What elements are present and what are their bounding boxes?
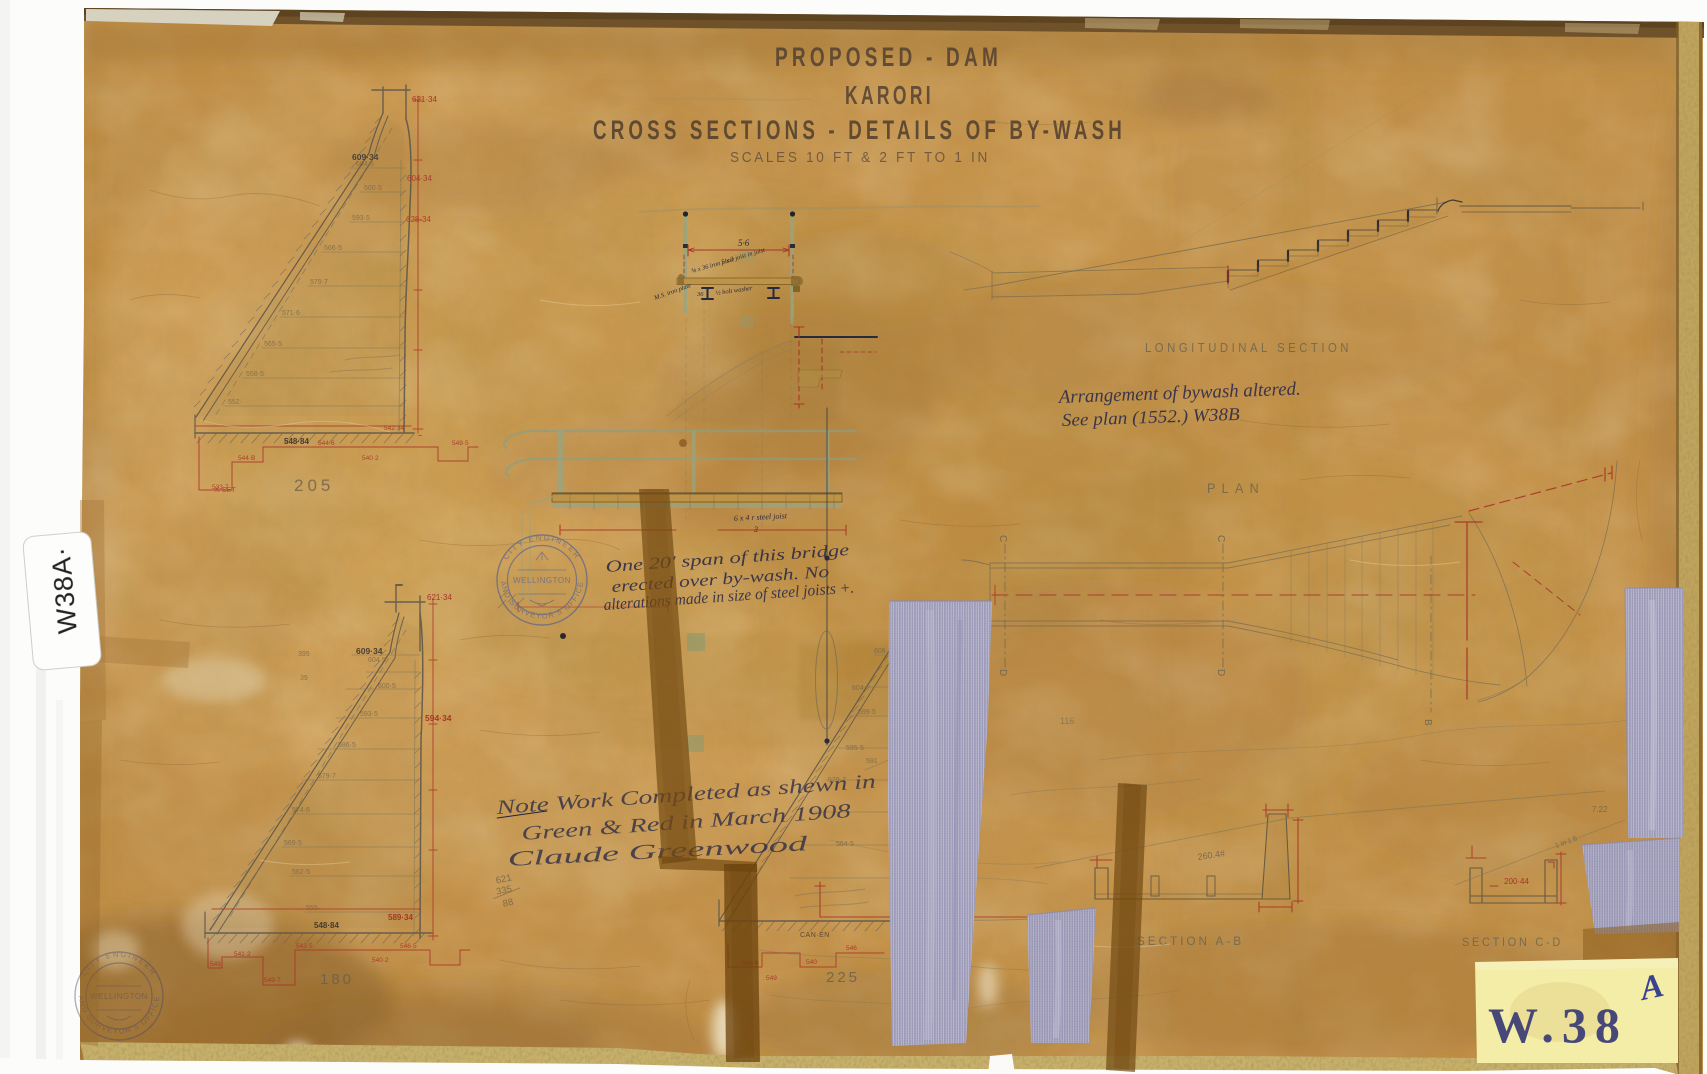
svg-text:205: 205 — [294, 476, 334, 495]
svg-text:K·SET: K·SET — [215, 487, 236, 494]
svg-text:549·5: 549·5 — [452, 440, 469, 447]
svg-text:599·5: 599·5 — [858, 709, 876, 716]
svg-text:541·2: 541·2 — [234, 951, 251, 958]
svg-text:KARORI: KARORI — [845, 80, 934, 110]
svg-text:574·6: 574·6 — [292, 807, 310, 814]
svg-text:543·5: 543·5 — [296, 943, 313, 950]
svg-text:604·5: 604·5 — [368, 657, 386, 664]
svg-text:D: D — [1215, 669, 1226, 676]
svg-text:SECTION C-D: SECTION C-D — [1462, 935, 1563, 949]
svg-text:595·5: 595·5 — [846, 745, 864, 752]
svg-text:D: D — [997, 669, 1008, 676]
svg-text:628·34: 628·34 — [406, 215, 431, 224]
svg-text:200·44: 200·44 — [1504, 877, 1529, 886]
svg-text:569·5: 569·5 — [284, 840, 302, 847]
svg-text:549: 549 — [766, 975, 777, 982]
svg-text:39: 39 — [300, 675, 308, 682]
svg-text:600·5: 600·5 — [378, 683, 396, 690]
svg-text:7.22: 7.22 — [1592, 805, 1608, 814]
svg-text:544·B: 544·B — [238, 455, 255, 462]
svg-text:609·34: 609·34 — [356, 646, 383, 656]
svg-text:W.38: W.38 — [1488, 997, 1628, 1053]
svg-text:546: 546 — [846, 945, 857, 952]
svg-text:5·6: 5·6 — [738, 238, 750, 248]
svg-text:WELLINGTON: WELLINGTON — [90, 992, 148, 1001]
svg-text:SCALES 10 FT & 2 FT TO 1: SCALES 10 FT & 2 FT TO 1 IN — [730, 149, 990, 166]
svg-text:593·5: 593·5 — [360, 711, 378, 718]
svg-text:546·5: 546·5 — [400, 943, 417, 950]
svg-text:CAN·EN: CAN·EN — [800, 932, 830, 939]
svg-text:579·7: 579·7 — [318, 773, 336, 780]
svg-text:C: C — [1215, 535, 1226, 542]
svg-text:586·5: 586·5 — [338, 742, 356, 749]
svg-text:PROPOSED - DAM: PROPOSED - DAM — [775, 42, 1002, 72]
svg-text:PLAN: PLAN — [1207, 480, 1265, 496]
svg-text:594·34: 594·34 — [425, 713, 452, 723]
svg-text:544·6: 544·6 — [318, 440, 335, 447]
svg-text:604·34: 604·34 — [407, 174, 432, 183]
svg-text:225: 225 — [826, 969, 860, 986]
svg-text:395: 395 — [298, 651, 310, 658]
svg-text:562·5: 562·5 — [292, 869, 310, 876]
svg-text:621·34: 621·34 — [427, 593, 452, 602]
svg-text:548·84: 548·84 — [314, 921, 339, 930]
svg-text:C: C — [997, 535, 1008, 542]
svg-text:36: 36 — [696, 291, 704, 298]
svg-text:116: 116 — [1060, 716, 1074, 726]
svg-text:540·2: 540·2 — [362, 455, 379, 462]
svg-text:B: B — [1422, 719, 1433, 726]
svg-text:589·34: 589·34 — [388, 913, 413, 922]
svg-text:~: ~ — [418, 433, 422, 440]
svg-text:540: 540 — [806, 959, 817, 966]
svg-text:591: 591 — [866, 758, 878, 765]
svg-text:540·2: 540·2 — [372, 957, 389, 964]
svg-text:549·7: 549·7 — [264, 977, 281, 984]
svg-text:548·84: 548·84 — [284, 437, 309, 446]
svg-text:LONGITUDINAL SECTION: LONGITUDINAL SECTION — [1145, 340, 1352, 355]
svg-text:604: 604 — [852, 685, 864, 692]
svg-text:88: 88 — [502, 897, 515, 910]
svg-text:WELLINGTON: WELLINGTON — [513, 576, 571, 585]
svg-text:180: 180 — [320, 971, 354, 988]
svg-text:549: 549 — [210, 961, 221, 968]
svg-text:CROSS SECTIONS - DETAILS O: CROSS SECTIONS - DETAILS OF BY-WASH — [593, 115, 1126, 145]
svg-text:621·34: 621·34 — [412, 95, 437, 104]
